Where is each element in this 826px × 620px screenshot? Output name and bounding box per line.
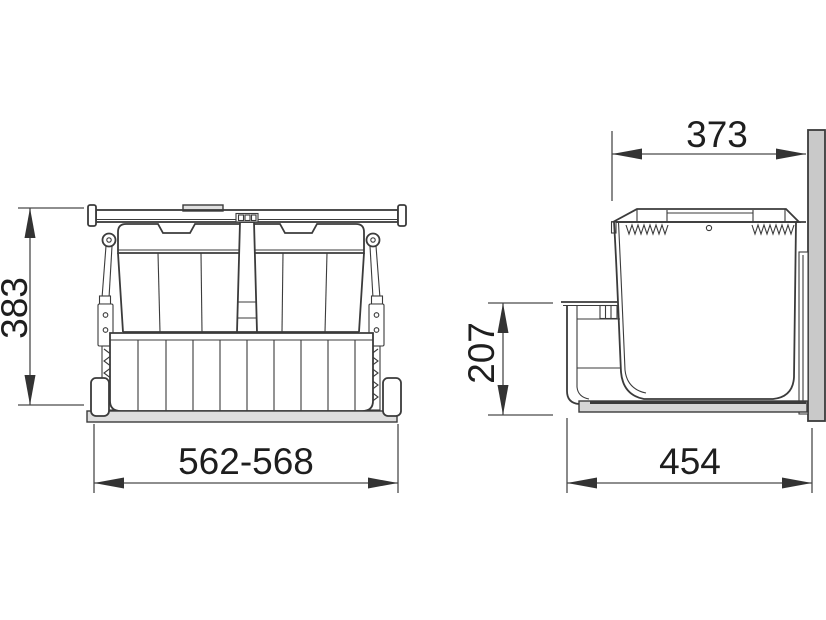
dim-base-depth: 454: [567, 418, 812, 493]
base-strip: [87, 411, 397, 422]
lid-pin: [706, 225, 711, 230]
foot-right: [383, 378, 401, 416]
frame-basket: [110, 333, 373, 411]
pivot-right: [367, 234, 380, 247]
dim-front-height-label: 207: [461, 322, 502, 384]
dim-base-depth-label: 454: [659, 441, 721, 482]
front-view: 383 562-568: [0, 205, 406, 493]
cabinet-door-panel: [808, 130, 825, 421]
vent-slits-left: [626, 225, 668, 234]
rail-clamp: [236, 214, 258, 223]
bin-side: [611, 209, 808, 414]
dim-height: 383: [0, 208, 84, 405]
pull-out-rail: [88, 205, 406, 226]
foot-left: [91, 378, 109, 416]
technical-drawing-page: 383 562-568: [0, 0, 826, 620]
dim-width-label: 562-568: [178, 441, 314, 482]
side-view: 373 207 454: [461, 114, 825, 493]
dim-top-width: 373: [612, 114, 806, 201]
rail-endcap-left: [88, 205, 96, 226]
dim-height-label: 383: [0, 277, 35, 339]
lower-frame: [87, 333, 401, 422]
technical-drawing: 383 562-568: [0, 0, 826, 620]
dim-top-width-label: 373: [686, 114, 748, 155]
dim-width: 562-568: [94, 424, 398, 493]
front-frame-side: [561, 302, 620, 404]
base-tray: [579, 401, 807, 412]
rail-endcap-right: [398, 205, 406, 226]
bin-body-side: [614, 222, 796, 399]
pivot-left: [103, 234, 116, 247]
center-column: [237, 222, 257, 332]
bin-lid-side: [613, 209, 799, 222]
column-clamp-side: [600, 306, 617, 319]
dim-front-height: 207: [461, 303, 553, 415]
vent-slits-right: [752, 225, 794, 234]
